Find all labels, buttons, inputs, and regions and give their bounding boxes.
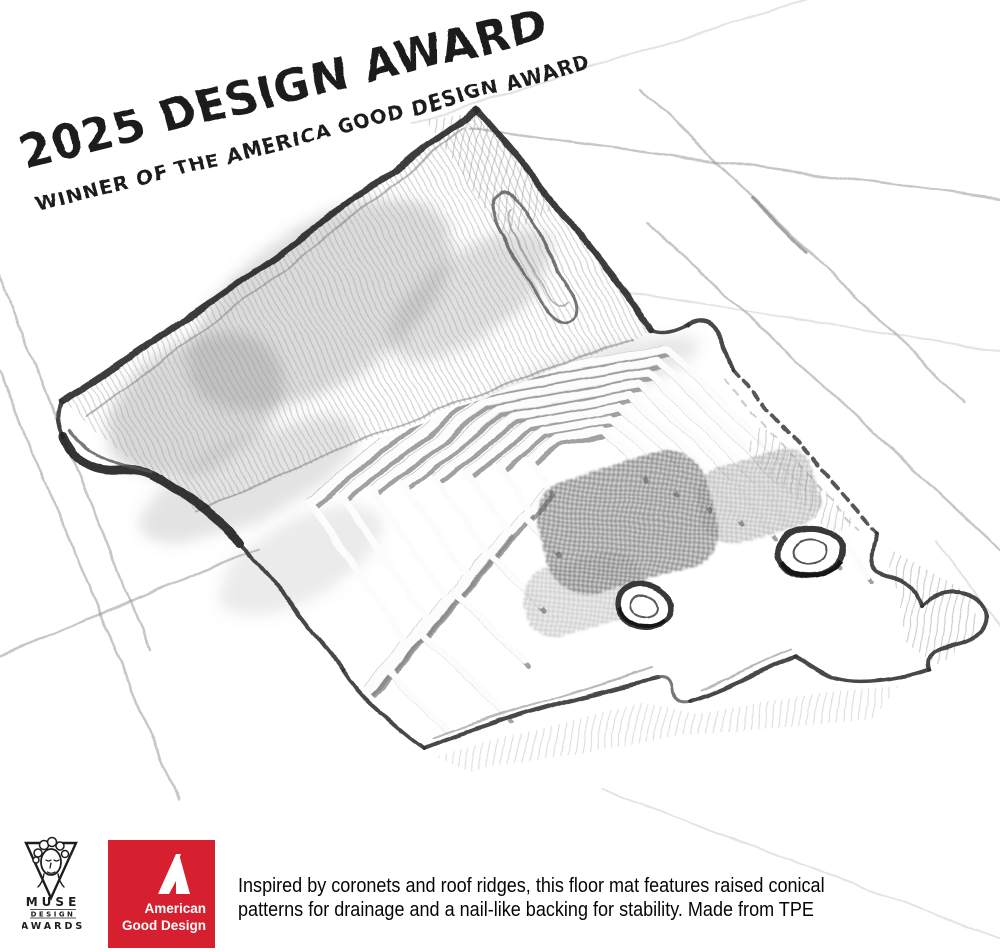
- grommet-left: [615, 581, 675, 632]
- muse-wordmark: MUSE: [26, 895, 81, 909]
- floor-mat: [59, 110, 987, 948]
- caption-line-2: patterns for drainage and a nail-like ba…: [238, 898, 825, 922]
- muse-awards-label: AWARDS: [22, 921, 84, 932]
- grommet-right: [775, 525, 846, 580]
- muse-goddess-triangle-icon: [26, 838, 76, 899]
- product-image: 2025 DESIGN AWARD WINNER OF THE AMERICA …: [0, 0, 1000, 952]
- american-good-design-logo: American Good Design: [108, 840, 215, 948]
- muse-design-label: DESIGN: [31, 911, 76, 919]
- caption: Inspired by coronets and roof ridges, th…: [238, 874, 825, 921]
- floor-mat-sketch: 2025 DESIGN AWARD WINNER OF THE AMERICA …: [0, 0, 1000, 952]
- agd-american-label: American: [144, 902, 206, 916]
- caption-line-1: Inspired by coronets and roof ridges, th…: [238, 874, 825, 898]
- muse-design-awards-logo: MUSE DESIGN AWARDS: [22, 836, 84, 936]
- agd-good-design-label: Good Design: [122, 919, 206, 933]
